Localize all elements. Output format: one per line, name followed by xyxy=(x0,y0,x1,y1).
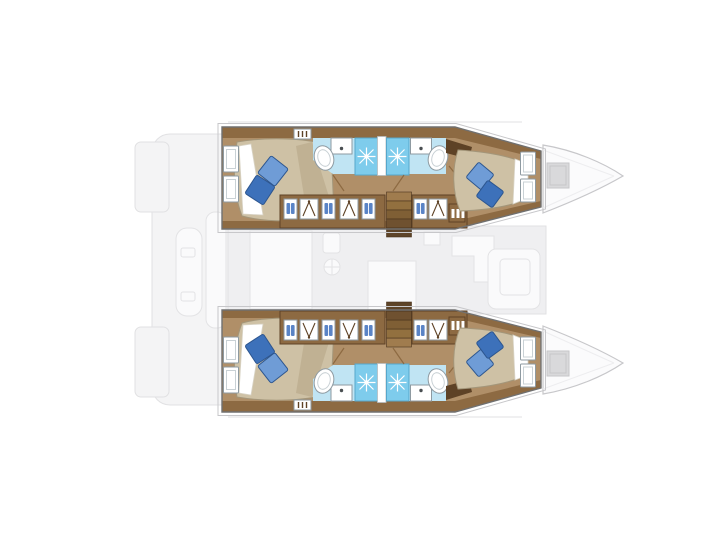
cockpit-table-inset xyxy=(181,292,195,301)
sink-faucet xyxy=(340,147,343,150)
folded-clothes xyxy=(287,203,291,214)
aft-bathroom xyxy=(311,138,378,175)
locker-clothes-icon xyxy=(362,199,375,219)
drawer-slot xyxy=(457,209,460,218)
folded-clothes xyxy=(369,203,373,214)
port-transom-platform xyxy=(135,142,169,212)
hanger-hook xyxy=(437,200,439,202)
locker-clothes-icon xyxy=(284,199,297,219)
sink-faucet xyxy=(419,147,422,150)
shower-drain-center xyxy=(364,154,368,158)
sink xyxy=(331,138,352,154)
locker-clothes-icon xyxy=(322,199,335,219)
sink xyxy=(411,138,432,154)
galley-stove xyxy=(323,233,340,253)
cockpit-table-inset xyxy=(181,248,195,257)
folded-clothes xyxy=(421,203,425,214)
hanger-hook xyxy=(348,200,350,202)
folded-clothes xyxy=(417,203,421,214)
hull-top-trim xyxy=(222,127,455,138)
galley-counter xyxy=(250,231,312,309)
salon-table xyxy=(500,259,530,295)
hanger-hook xyxy=(308,200,310,202)
folded-clothes xyxy=(325,203,329,214)
wardrobe-lockers xyxy=(280,195,385,228)
locker-clothes-icon xyxy=(414,199,427,219)
drawer-slot xyxy=(452,209,455,218)
starboard-hull xyxy=(218,302,546,416)
forward-bathroom xyxy=(386,138,451,175)
shower-drain-center xyxy=(395,154,399,158)
folded-clothes xyxy=(329,203,333,214)
catamaran-floorplan xyxy=(0,0,720,539)
port-hull xyxy=(218,124,546,238)
starboard-transom-platform xyxy=(135,327,169,397)
salon-cabinet xyxy=(424,232,440,245)
folded-clothes xyxy=(365,203,369,214)
floorplan-page xyxy=(0,0,720,539)
folded-clothes xyxy=(291,203,295,214)
bathroom-divider-wall xyxy=(378,137,387,176)
cockpit-table xyxy=(176,228,202,316)
companionway-stairs xyxy=(387,192,412,237)
